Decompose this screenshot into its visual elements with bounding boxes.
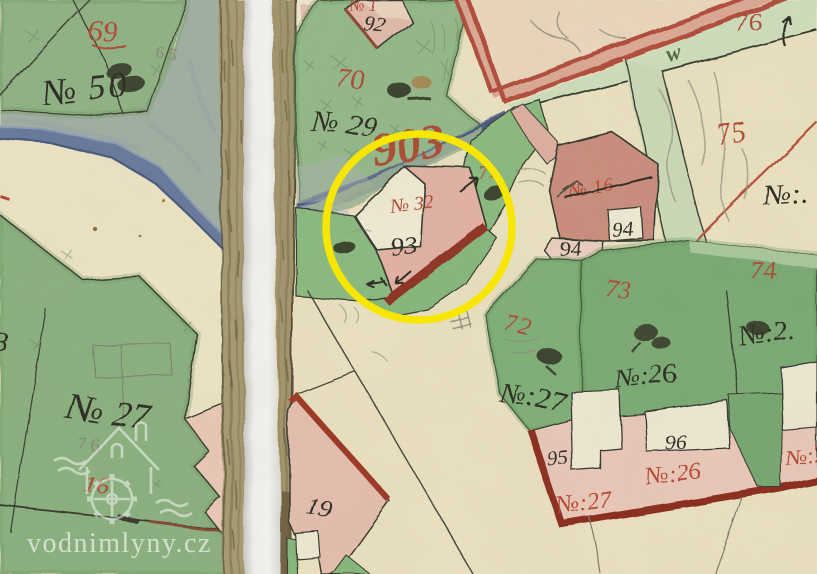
svg-text:vodnimlyny.cz: vodnimlyny.cz [27,528,212,559]
